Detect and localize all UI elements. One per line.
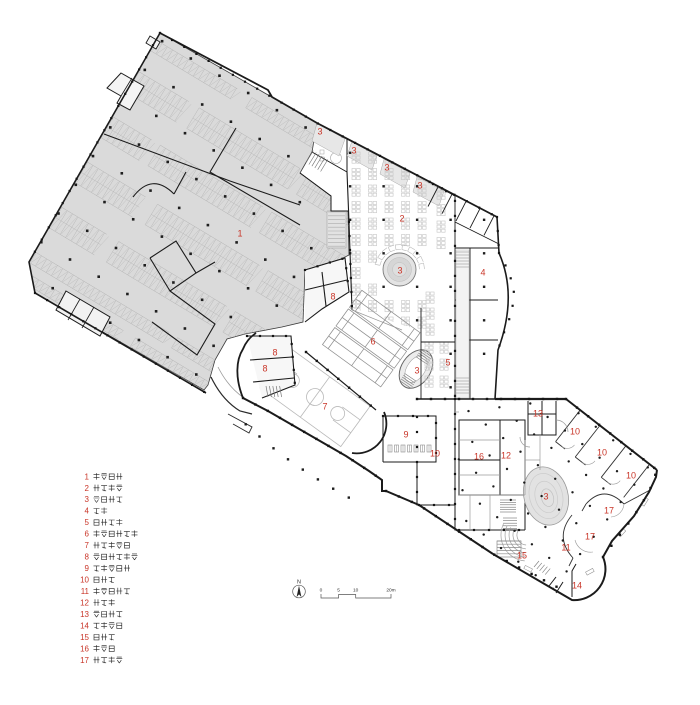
svg-text:8: 8 [272, 347, 277, 357]
svg-text:13: 13 [533, 408, 543, 418]
svg-text:5: 5 [445, 357, 450, 367]
svg-text:10: 10 [80, 576, 89, 585]
svg-text:3: 3 [85, 495, 90, 504]
svg-text:1: 1 [85, 472, 90, 481]
svg-text:15: 15 [80, 633, 89, 642]
svg-text:1: 1 [237, 228, 242, 238]
svg-text:10: 10 [597, 447, 607, 457]
svg-text:6: 6 [370, 336, 375, 346]
svg-text:5: 5 [337, 588, 340, 594]
svg-text:8: 8 [85, 553, 90, 562]
svg-text:11: 11 [561, 542, 570, 552]
svg-text:11: 11 [81, 587, 90, 596]
svg-text:10: 10 [430, 448, 440, 458]
svg-text:4: 4 [85, 507, 90, 516]
svg-text:3: 3 [384, 162, 389, 172]
svg-text:2: 2 [85, 484, 90, 493]
svg-text:15: 15 [517, 550, 527, 560]
svg-text:8: 8 [262, 363, 267, 373]
svg-text:5: 5 [85, 518, 90, 527]
svg-text:3: 3 [397, 265, 402, 275]
svg-text:3: 3 [417, 180, 422, 190]
svg-text:3: 3 [317, 126, 322, 136]
svg-text:12: 12 [80, 599, 89, 608]
svg-text:10: 10 [353, 588, 359, 594]
svg-text:2: 2 [399, 213, 404, 223]
svg-text:17: 17 [585, 531, 595, 541]
svg-text:7: 7 [85, 541, 90, 550]
svg-text:7: 7 [322, 401, 327, 411]
svg-text:3: 3 [414, 365, 419, 375]
svg-text:N: N [297, 580, 301, 586]
svg-text:8: 8 [330, 291, 335, 301]
svg-text:14: 14 [572, 580, 582, 590]
svg-text:9: 9 [85, 564, 90, 573]
svg-text:20m: 20m [386, 588, 395, 594]
svg-text:9: 9 [403, 429, 408, 439]
svg-text:10: 10 [570, 426, 580, 436]
svg-text:6: 6 [85, 530, 90, 539]
svg-text:10: 10 [626, 470, 636, 480]
svg-text:13: 13 [80, 610, 89, 619]
svg-text:16: 16 [474, 451, 484, 461]
svg-text:14: 14 [80, 621, 89, 630]
svg-text:17: 17 [604, 505, 614, 515]
svg-text:4: 4 [480, 267, 485, 277]
svg-text:3: 3 [351, 145, 356, 155]
svg-text:17: 17 [80, 656, 89, 665]
svg-text:0: 0 [320, 588, 323, 594]
svg-text:3: 3 [543, 491, 548, 501]
svg-text:16: 16 [80, 644, 89, 653]
svg-text:12: 12 [501, 450, 511, 460]
